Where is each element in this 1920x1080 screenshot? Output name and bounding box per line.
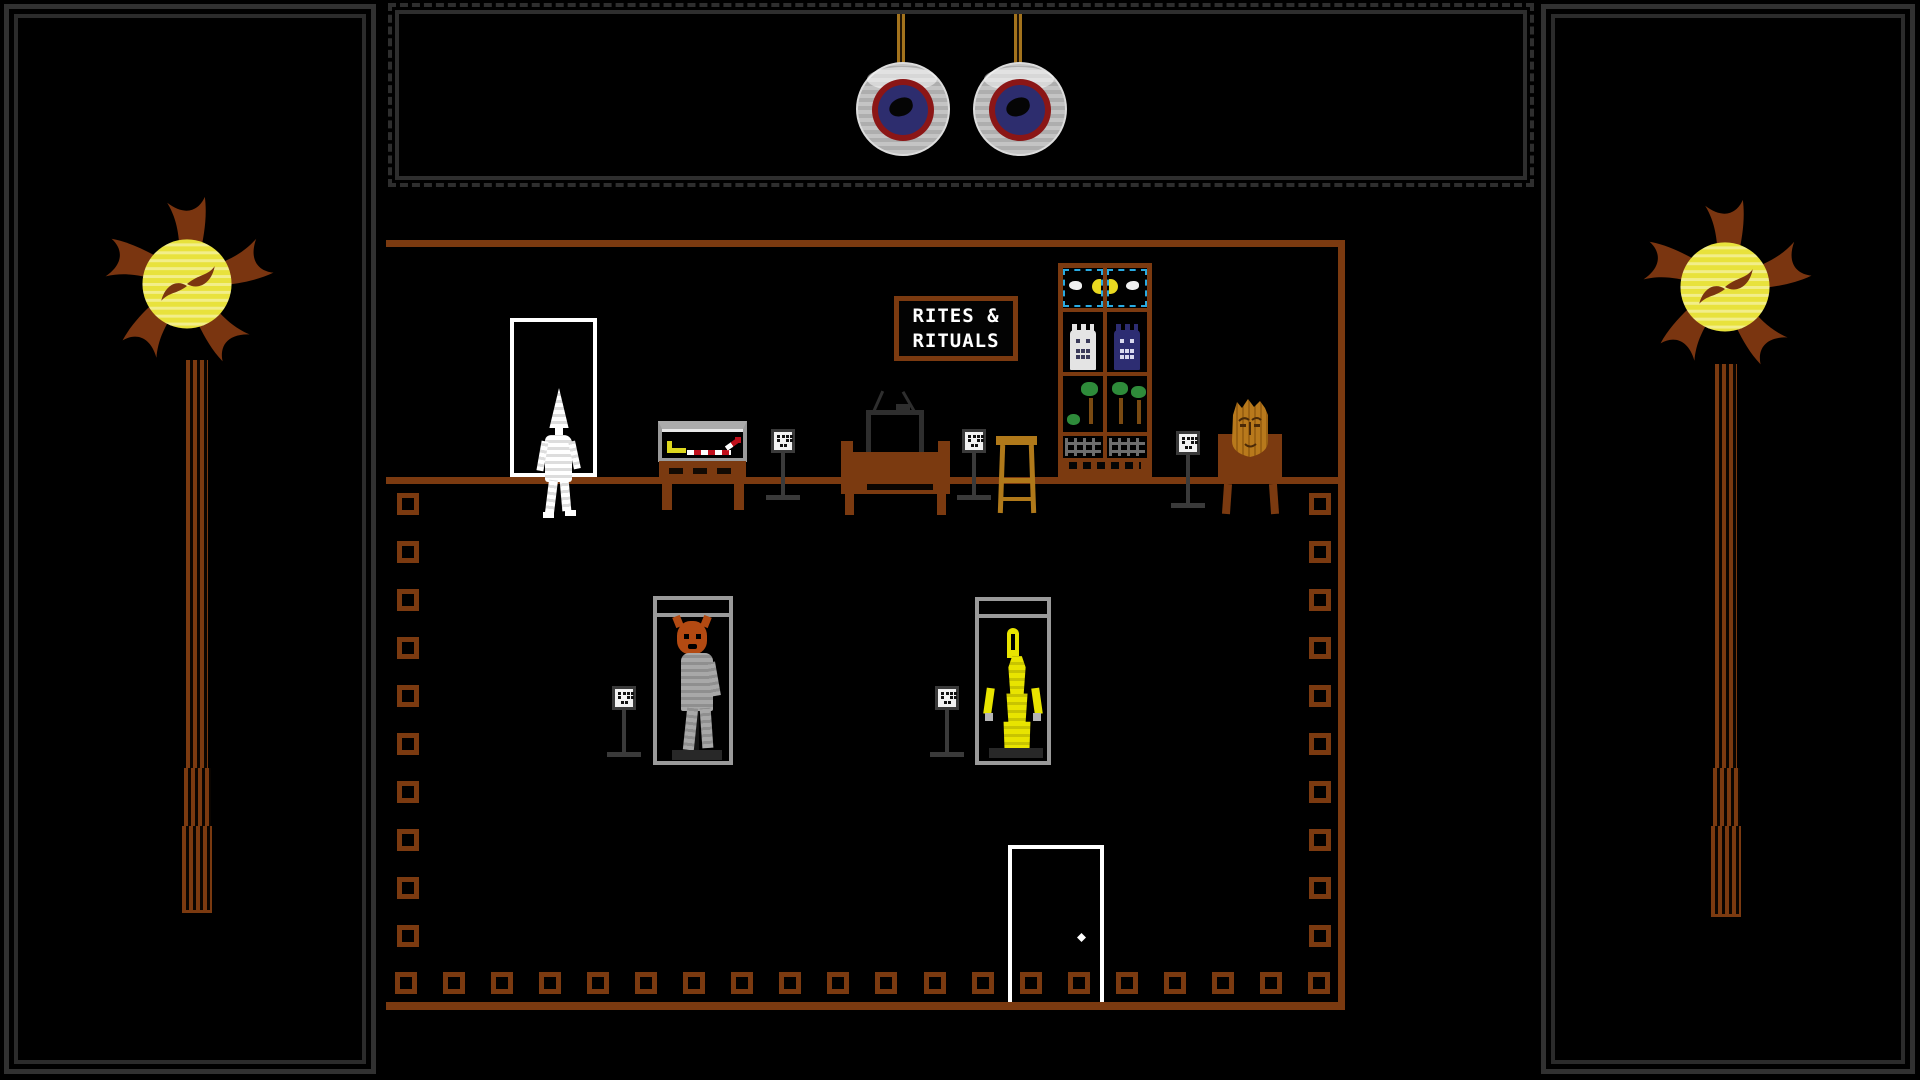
torch-pole-segment [184, 768, 211, 826]
masked-mannequin-case[interactable] [653, 596, 733, 765]
case-table-leg [734, 482, 744, 510]
exhibit-placard[interactable] [1171, 431, 1205, 508]
case-table-slot [693, 468, 707, 474]
placard-sign [935, 686, 959, 710]
floor-tile [397, 877, 419, 899]
yellow-moon-shape [1092, 279, 1101, 294]
idol-hood-spike [1007, 628, 1019, 658]
placard-sign [771, 429, 795, 453]
floor-tiles-right-column [1309, 493, 1331, 947]
placard-base [607, 752, 641, 757]
placard-stand [1186, 455, 1190, 503]
room-wall-right [1338, 240, 1345, 1010]
floor-tile [1309, 829, 1331, 851]
cabinet-shelf-divider [1063, 308, 1147, 312]
floor-tile [397, 925, 419, 947]
floor-tile [443, 972, 465, 994]
case-table-slot [717, 468, 731, 474]
placard-glyph [968, 435, 971, 438]
stool-seat [996, 436, 1037, 445]
cabinet-shelf-divider [1063, 372, 1147, 376]
floor-tile [683, 972, 705, 994]
placard-glyph [941, 692, 944, 695]
floor-tile [1309, 925, 1331, 947]
torch-flame-icon [1626, 186, 1824, 384]
door-knob [1077, 933, 1086, 942]
wooden-stool[interactable] [996, 436, 1037, 514]
blue-doll-figure [1114, 330, 1140, 370]
stool-rail [1001, 478, 1032, 483]
room-wall-top [386, 240, 1345, 247]
floor-tile [1309, 781, 1331, 803]
tree-canopy [1112, 382, 1128, 395]
tree-canopy [1081, 382, 1098, 396]
hanging-eyeball-right[interactable] [973, 8, 1067, 156]
carved-head-icon [1226, 395, 1274, 459]
left-torch [82, 180, 292, 915]
exhibit-placard[interactable] [930, 686, 964, 757]
idol-hand-left [985, 713, 993, 721]
curio-cabinet[interactable] [1058, 263, 1152, 477]
torch-pole-segment [182, 826, 212, 913]
floor-tile [539, 972, 561, 994]
horned-mask [677, 621, 707, 654]
placard-base [766, 495, 800, 500]
case-table-slot [669, 468, 683, 474]
placard-base [930, 752, 964, 757]
shop-sign[interactable]: RITES & RITUALS [894, 296, 1018, 361]
display-case-band [979, 614, 1047, 618]
exhibit-placard[interactable] [957, 429, 991, 500]
tree-trunk [1137, 400, 1141, 424]
dresser-leg [937, 494, 946, 515]
game-stage: RITES & RITUALS [0, 0, 1920, 1080]
floor-tile [1309, 877, 1331, 899]
mannequin-hood [547, 388, 571, 428]
placard-sign [1176, 431, 1200, 455]
display-case-plinth [672, 750, 722, 760]
mannequin-foot-left [543, 512, 554, 518]
tree-trunk [1089, 398, 1093, 424]
fence-trinkets [1109, 438, 1145, 456]
exit-door[interactable] [1008, 845, 1104, 1002]
floor-tiles-left-column [397, 493, 419, 947]
yellow-sickle-artifact [667, 448, 686, 453]
room-floor-line [386, 1002, 1345, 1010]
shop-window-box [395, 10, 1527, 180]
tree-trunk [1119, 398, 1123, 424]
floor-tile [1116, 972, 1138, 994]
hanging-eyeball-left[interactable] [856, 8, 950, 156]
torch-pole [1711, 364, 1741, 914]
bust-table-leg [1222, 484, 1232, 514]
floor-tile [827, 972, 849, 994]
exhibit-placard[interactable] [607, 686, 641, 757]
eyeball-icon [973, 62, 1067, 156]
cabinet-drawer-slots [1069, 462, 1141, 469]
mannequin-leg-right [560, 480, 572, 512]
placard-stand [781, 453, 785, 495]
torch-pole [182, 360, 212, 913]
potted-bush [1067, 414, 1080, 425]
idol-hand-right [1033, 713, 1041, 721]
placard-base [957, 495, 991, 500]
floor-tile [395, 972, 417, 994]
floor-tile [1212, 972, 1234, 994]
floor-tile [1260, 972, 1282, 994]
torch-pole-segment [1711, 826, 1741, 917]
shop-sign-line1: RITES & [899, 304, 1013, 329]
eyeball-rope [1014, 14, 1022, 64]
striped-wand-artifact [687, 450, 731, 455]
fence-trinkets [1065, 438, 1101, 456]
floor-tile [397, 637, 419, 659]
torch-pole-segment [186, 360, 208, 768]
floor-tile [1309, 493, 1331, 515]
torch-flame-icon [88, 183, 286, 381]
floor-tile [397, 589, 419, 611]
floor-tile [972, 972, 994, 994]
placard-sign [612, 686, 636, 710]
placard-stand [972, 453, 976, 495]
mannequin-leg-left [545, 480, 558, 514]
placard-stand [622, 710, 626, 752]
floor-tiles-bottom-row [395, 972, 1330, 994]
dresser-drawer-slot [867, 484, 933, 490]
wand-red-tip [735, 437, 741, 443]
eyeball-icon [856, 62, 950, 156]
floor-tile [875, 972, 897, 994]
white-mannequin[interactable] [536, 388, 582, 520]
floor-tile [491, 972, 513, 994]
torch-pole-segment [1715, 364, 1737, 768]
floor-tile [587, 972, 609, 994]
floor-tile [1164, 972, 1186, 994]
idol-hood-slit [1011, 634, 1015, 650]
cabinet-top-cell-left [1063, 269, 1103, 307]
floor-tile [397, 493, 419, 515]
floor-tile [1308, 972, 1330, 994]
floor-tile [397, 781, 419, 803]
placard-glyph [777, 435, 780, 438]
floor-tile [397, 685, 419, 707]
artifact-display-case[interactable] [651, 421, 751, 513]
carved-head-bust[interactable] [1218, 395, 1282, 515]
mask-eye [696, 634, 701, 639]
golden-idol-case[interactable] [975, 597, 1051, 765]
eyeball-rope [897, 14, 905, 64]
cabinet-top-cell-right [1107, 269, 1147, 307]
floor-tile [635, 972, 657, 994]
mannequin-foot-right [565, 510, 576, 516]
cabinet-shelf-divider [1063, 432, 1147, 436]
torch-pole-segment [1713, 768, 1740, 826]
yellow-moon-shape [1109, 279, 1118, 294]
white-doll-figure [1070, 330, 1096, 370]
floor-tile [779, 972, 801, 994]
shop-sign-line2: RITUALS [899, 329, 1013, 354]
floor-tile [397, 829, 419, 851]
case-table-leg [662, 482, 672, 510]
bust-table-leg [1269, 484, 1279, 514]
stool-rail [1001, 497, 1032, 501]
right-torch [1620, 183, 1830, 918]
tree-canopy [1131, 386, 1146, 398]
white-charm-shape [1126, 281, 1139, 290]
placard-base [1171, 503, 1205, 508]
floor-tile [397, 541, 419, 563]
exhibit-placard[interactable] [766, 429, 800, 500]
display-case-band [657, 613, 729, 617]
television-dresser[interactable] [841, 388, 950, 515]
dresser-leg [845, 494, 854, 515]
floor-tile [731, 972, 753, 994]
floor-tile [924, 972, 946, 994]
floor-tile [397, 733, 419, 755]
floor-tile [1309, 733, 1331, 755]
placard-sign [962, 429, 986, 453]
floor-tile [1309, 589, 1331, 611]
placard-glyph [1182, 437, 1185, 440]
placard-glyph [618, 692, 621, 695]
mask-mouth [688, 644, 697, 649]
mask-eye [684, 634, 689, 639]
placard-stand [945, 710, 949, 752]
floor-tile [1309, 685, 1331, 707]
white-charm-shape [1069, 281, 1082, 290]
floor-tile [1309, 637, 1331, 659]
floor-tile [1309, 541, 1331, 563]
display-case-plinth [989, 748, 1043, 758]
